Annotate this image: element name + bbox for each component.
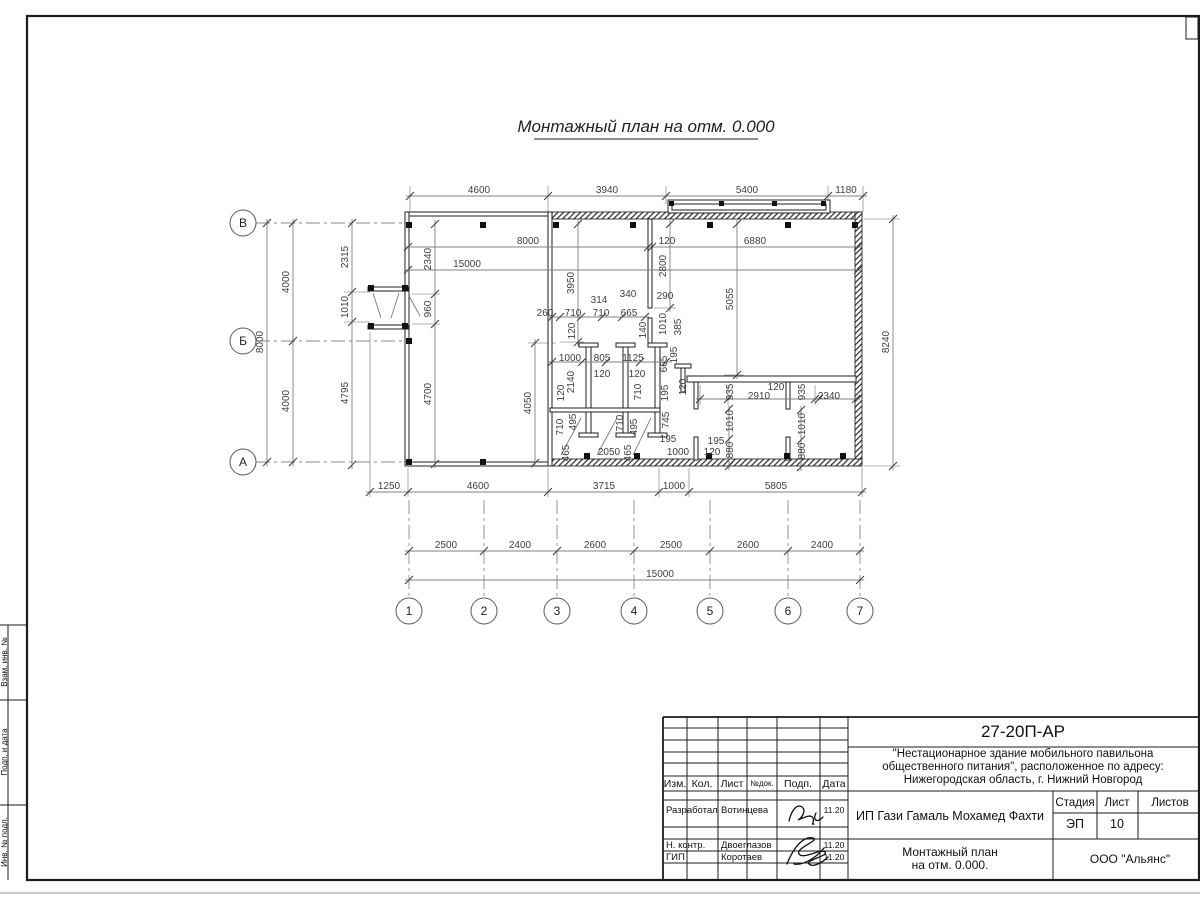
dim-label: 710 [615,414,626,431]
dim-label: 8000 [517,236,540,247]
dim-label: 385 [673,318,684,335]
signature-shared [787,838,828,866]
partition [586,345,591,437]
dim-label: 6880 [744,236,767,247]
dim-label: 195 [669,346,680,363]
stage-value: ЭП [1066,817,1084,831]
dim-label: 260 [537,308,554,319]
row-role-1: Н. контр. [666,840,705,851]
dim-label: 495 [568,413,579,430]
stage-label: Стадия [1055,797,1094,809]
side-label-podp: Подп. и дата [0,728,9,776]
dim-label: 8000 [255,330,266,353]
col-data: Дата [822,778,845,790]
extension-lines [344,186,900,497]
dim-label: 745 [661,411,672,428]
dim-label: 15000 [646,569,674,580]
dim-label: 2400 [811,540,834,551]
row-name-2: Коротаев [721,852,762,863]
dim-label: 4000 [281,270,292,293]
dim-label: 340 [620,289,637,300]
dim-label: 4600 [467,481,490,492]
dim-label: 2400 [509,540,532,551]
dim-label: 2600 [737,540,760,551]
row-date-0: 11.20 [824,805,845,815]
sheet-value: 10 [1110,817,1124,831]
dim-label: 1010 [340,295,351,318]
dim-label: 1010 [797,412,808,435]
dim-label: 665 [659,355,670,372]
sheet-label: Лист [1105,797,1131,809]
dim-label: 195 [660,384,671,401]
dim-label: 120 [659,236,676,247]
dim-label: 120 [594,369,611,380]
dim-label: 1180 [835,185,857,196]
sheets-label: Листов [1151,797,1188,809]
dim-label: 1010 [658,312,669,335]
dim-label: 2050 [598,447,621,458]
dim-label: 120 [556,384,567,401]
dim-label: 120 [678,378,689,395]
row-role-0: Разработал [666,805,718,816]
dim-label: 1000 [559,353,582,364]
dim-label: 880 [797,442,808,459]
dim-label: 2500 [435,540,458,551]
plan-title: Монтажный план на отм. 0.000 [517,117,775,136]
col-podp: Подп. [784,778,812,790]
dim-label: 2600 [584,540,607,551]
dim-label: 2340 [818,391,841,402]
dim-label: 2340 [423,247,434,270]
col-ndok: №док. [750,779,773,788]
dim-label: 314 [591,295,608,306]
row-name-1: Двоеглазов [721,840,772,851]
col-list: Лист [721,778,744,790]
dim-label: 15000 [453,259,481,270]
dim-label: 1010 [725,409,736,432]
col-kol: Кол. [692,778,713,790]
dim-label: 120 [629,369,646,380]
dim-label: 4600 [468,185,491,196]
dim-label: 1000 [663,481,686,492]
cad-canvas: Взам. инв. № Подп. и дата Инв. № подл. М… [0,0,1200,900]
dim-label: 5055 [725,287,736,310]
side-label-inv: Инв. № подл. [0,817,9,867]
row-role-2: ГИП [666,852,685,863]
dim-label: 5400 [736,185,759,196]
col-axis-label: 5 [707,604,714,618]
col-axis-label: 3 [554,604,561,618]
col-axis-label: 6 [785,604,792,618]
dim-label: 1250 [378,481,401,492]
dim-label: 710 [565,308,582,319]
row-axis-label: А [239,455,247,469]
drawing-title: Монтажный план на отм. 0.000 [517,117,775,139]
dim-label: 120 [768,382,785,393]
col-izm: Изм. [664,778,687,790]
drawing-name-line2: на отм. 0.000. [912,858,989,872]
dim-label: 710 [633,383,644,400]
drawing-sheet: Взам. инв. № Подп. и дата Инв. № подл. М… [0,0,1200,900]
row-axis-label: Б [239,334,247,348]
dim-label: 2500 [660,540,683,551]
dim-label: 3940 [596,185,619,196]
drawing-name-line1: Монтажный план [902,845,998,859]
col-axis-label: 4 [631,604,638,618]
project-name-line2: общественного питания", расположенное по… [882,761,1164,773]
col-axis-label: 1 [406,604,413,618]
dim-label: 2140 [566,370,577,393]
dimension-layer: 4600394054001180800012068801500012504600… [255,185,897,584]
dim-label: 935 [797,383,808,400]
dim-label: 2800 [658,254,669,277]
dim-label: 805 [594,353,611,364]
dim-label: 960 [423,300,434,317]
floor-plan: 4600394054001180800012068801500012504600… [230,185,900,624]
dim-label: 2315 [340,245,351,268]
side-label-vzam: Взам. инв. № [0,637,9,687]
dim-label: 120 [567,322,578,339]
dim-label: 880 [725,441,736,458]
dim-label: 1125 [622,353,644,364]
dim-label: 465 [561,444,572,461]
outer-walls [548,212,862,466]
dim-label: 3950 [566,271,577,294]
dim-label: 140 [638,321,649,338]
doc-number: 27-20П-АР [981,722,1065,741]
dim-label: 4700 [423,382,434,405]
row-date-2: 11.20 [824,852,845,862]
side-column: Взам. инв. № Подп. и дата Инв. № подл. [0,625,27,880]
dim-label: 120 [704,447,721,458]
dim-label: 195 [660,434,677,445]
dim-label: 710 [555,418,566,435]
client-name: ИП Гази Гамаль Мохамед Фахти [856,809,1044,823]
thin-walls [368,200,856,466]
dim-label: 665 [621,308,638,319]
dim-label: 290 [657,291,674,302]
project-name-line3: Нижегородская область, г. Нижний Новгоро… [904,774,1143,786]
company-name: ООО "Альянс" [1090,852,1170,866]
col-axis-label: 2 [481,604,488,618]
dim-label: 4000 [281,389,292,412]
dim-label: 8240 [881,330,892,353]
row-date-1: 11.20 [824,840,845,850]
dim-label: 935 [725,383,736,400]
row-name-0: Вотинцева [721,805,769,816]
dim-label: 3715 [593,481,616,492]
dim-label: 5805 [765,481,788,492]
dim-label: 195 [708,436,725,447]
col-axis-label: 7 [857,604,864,618]
project-name-line1: "Нестационарное здание мобильного павиль… [893,748,1154,760]
dim-label: 4050 [523,391,534,414]
dim-label: 1000 [667,447,690,458]
dim-label: 465 [623,444,634,461]
title-block: 27-20П-АР "Нестационарное здание мобильн… [663,717,1199,880]
row-axis-label: В [239,216,247,230]
dim-label: 495 [629,418,640,435]
dim-label: 4795 [340,381,351,404]
signature-votintseva [789,806,823,824]
dim-label: 710 [593,308,610,319]
